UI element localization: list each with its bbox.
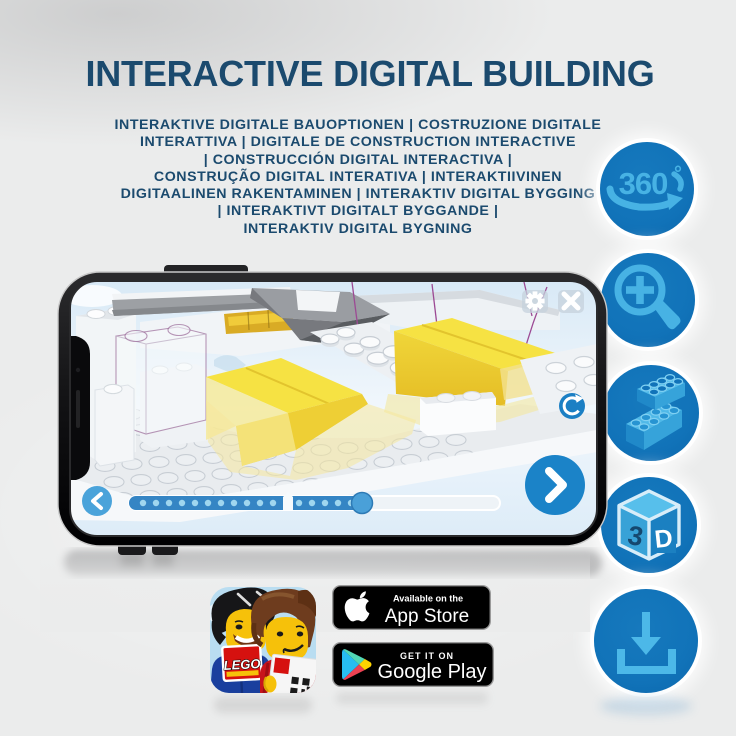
svg-text:LEGO: LEGO — [223, 656, 261, 673]
svg-text:Available on the: Available on the — [393, 594, 463, 604]
svg-text:Google Play: Google Play — [378, 661, 487, 683]
svg-text:App Store: App Store — [385, 606, 470, 627]
svg-text:GET IT ON: GET IT ON — [400, 651, 454, 661]
